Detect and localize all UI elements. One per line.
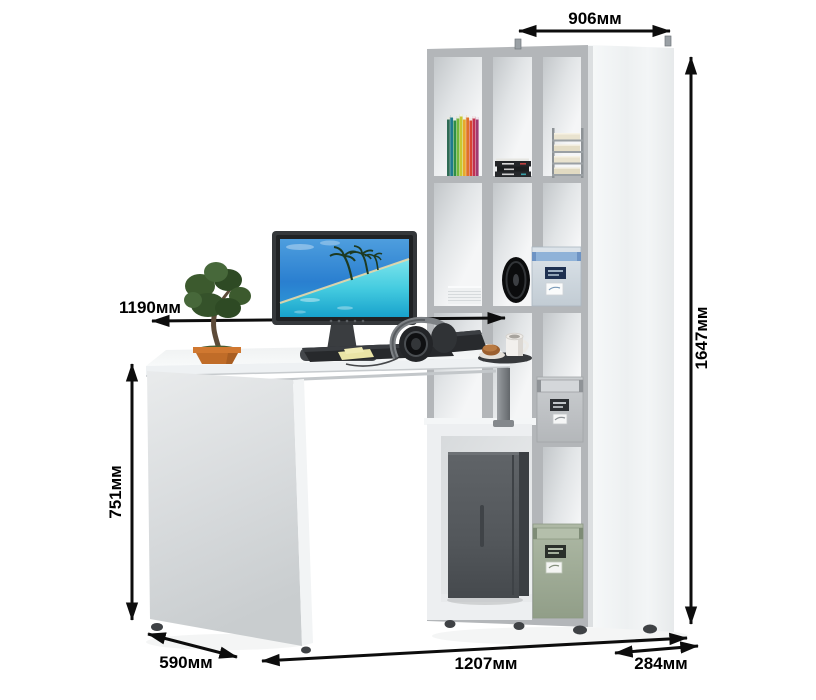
dimension-desk-depth-label: 590мм bbox=[159, 653, 213, 672]
furniture-diagram: 1190мм bbox=[0, 0, 816, 700]
dimension-desktop-width-label: 1190мм bbox=[119, 298, 181, 317]
wall-anchor-icon bbox=[665, 36, 671, 46]
stacked-black-books bbox=[495, 159, 531, 178]
desk-leg-panel bbox=[147, 371, 302, 646]
desk-foot bbox=[301, 647, 311, 654]
bonsai-plant bbox=[184, 262, 251, 364]
headphone-cup bbox=[431, 323, 457, 353]
under-desk-cabinet bbox=[424, 418, 536, 630]
paper-stack bbox=[448, 286, 481, 304]
wall-anchor-icon bbox=[515, 39, 521, 49]
dimension-shelf-depth: 284мм bbox=[615, 646, 698, 673]
shelf-foot bbox=[573, 626, 587, 635]
dimension-shelf-width-label: 906мм bbox=[568, 9, 622, 28]
shelf-side-panel bbox=[588, 45, 674, 632]
cabinet-foot bbox=[514, 622, 525, 630]
storage-box-blue bbox=[532, 247, 581, 306]
dimension-shelf-depth-label: 284мм bbox=[634, 654, 688, 673]
speaker bbox=[502, 257, 530, 303]
dimension-total-height-label: 1647мм bbox=[692, 307, 711, 370]
dimension-total-width-label: 1207мм bbox=[455, 654, 518, 673]
desk-foot bbox=[151, 623, 163, 631]
monitor-screen bbox=[280, 239, 409, 317]
shelf-side-panel-edge bbox=[588, 46, 593, 627]
storage-box-gray bbox=[537, 377, 583, 442]
dimension-total-height: 1647мм bbox=[691, 57, 711, 624]
cabinet-foot bbox=[445, 620, 456, 628]
dimension-shelf-width: 906мм bbox=[519, 9, 670, 31]
dimension-desk-height-label: 751мм bbox=[106, 465, 125, 519]
shelf-foot bbox=[643, 625, 657, 634]
paper-trays bbox=[552, 128, 584, 178]
plant-pot-rim bbox=[193, 347, 241, 353]
dimension-desk-height: 751мм bbox=[106, 364, 132, 620]
pc-case bbox=[447, 452, 529, 605]
storage-box-green bbox=[533, 524, 583, 618]
